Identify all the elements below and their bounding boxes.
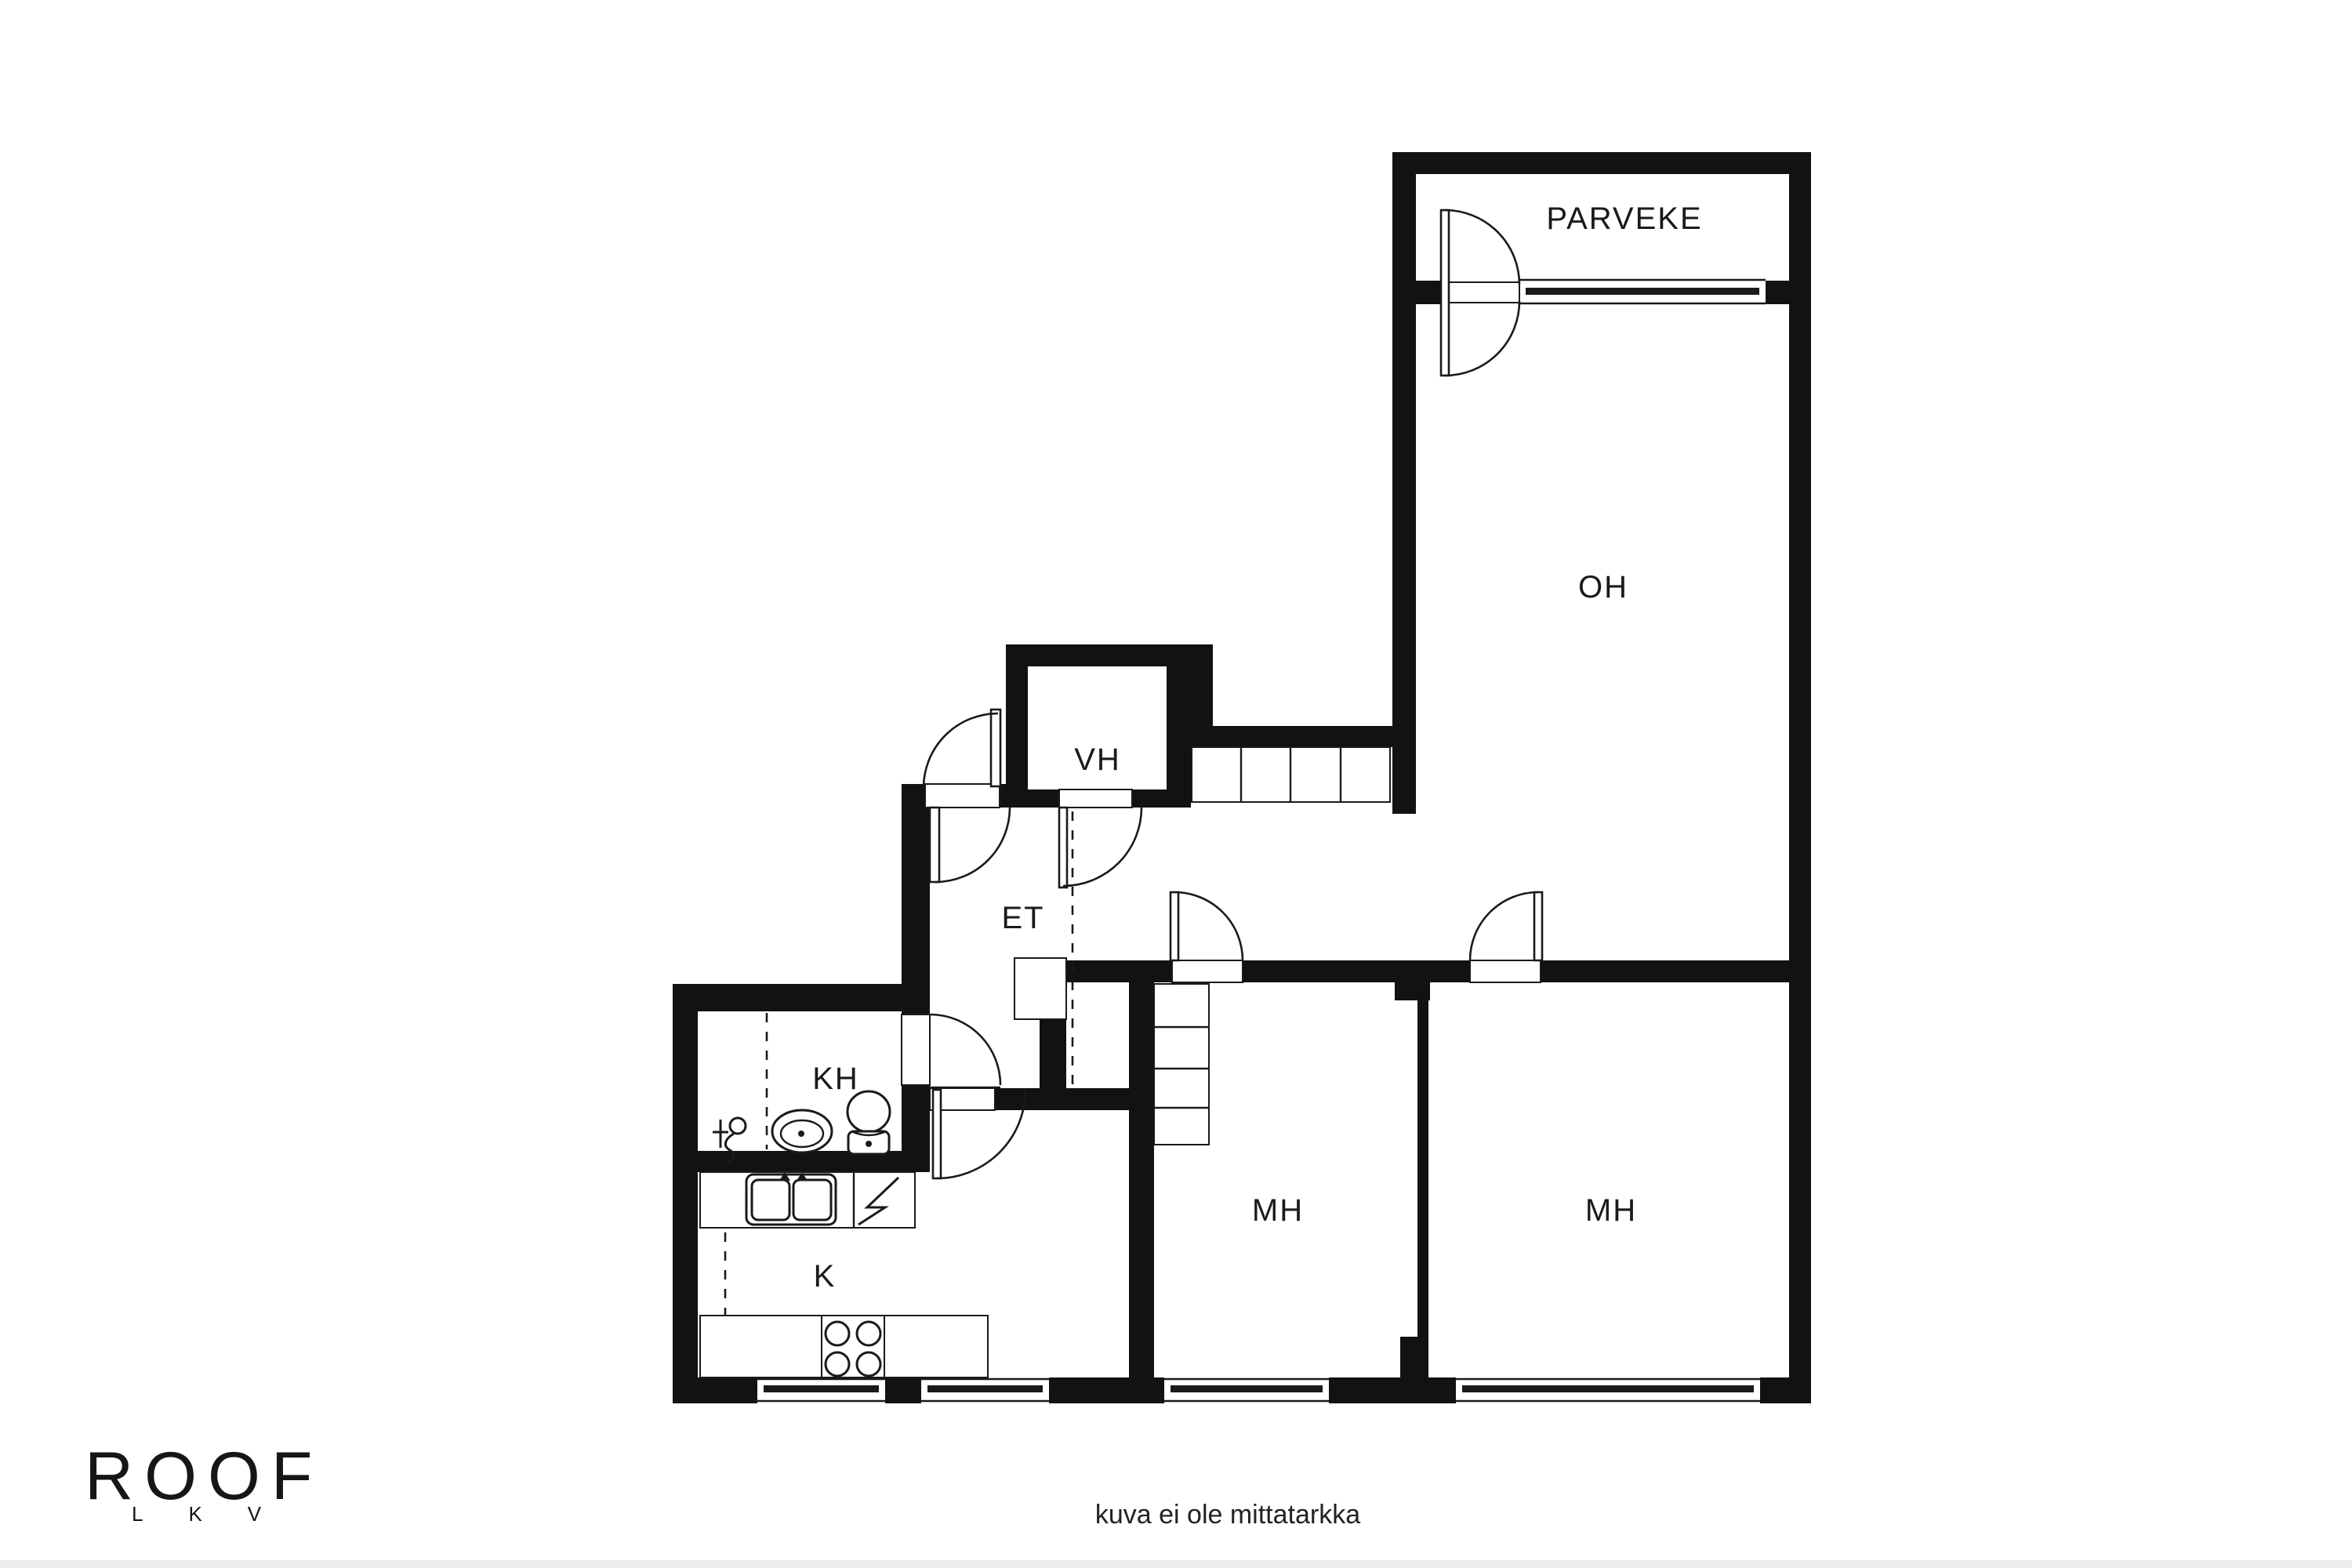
disclaimer-text: kuva ei ole mittatarkka — [1095, 1500, 1360, 1530]
room-label-bathroom: KH — [812, 1062, 859, 1096]
room-label-bedroom-right: MH — [1585, 1193, 1637, 1228]
stove-icon — [822, 1316, 884, 1377]
hall-wardrobe-row — [1192, 747, 1390, 802]
room-label-bedroom-left: MH — [1252, 1193, 1304, 1228]
front-door-outer-swing-icon — [924, 710, 1000, 808]
room-label-balcony: PARVEKE — [1546, 201, 1702, 236]
toilet-icon — [848, 1091, 890, 1154]
bedroom-left-door-swing-icon — [1171, 892, 1243, 982]
bedroom-right-window — [1456, 1379, 1760, 1401]
kitchen-window-2 — [921, 1379, 1049, 1401]
hall-cabinet — [1014, 958, 1066, 1019]
bedroom-left-window — [1164, 1379, 1329, 1401]
room-label-entry-hall: ET — [1001, 901, 1044, 935]
floor-plan: PARVEKE OH VH ET KH K MH MH ROOF LKV kuv… — [0, 0, 2352, 1568]
front-door-inner-swing-icon — [930, 808, 1010, 882]
room-label-kitchen: K — [814, 1259, 837, 1294]
roof-logo: ROOF LKV — [85, 1439, 323, 1526]
bedroom-walls — [1014, 960, 1789, 1377]
bathroom-door-swing-icon — [902, 1014, 1000, 1087]
bedroom-right-door-swing-icon — [1470, 892, 1542, 982]
living-room-left-wall — [1392, 303, 1416, 814]
entry-walls — [673, 784, 1006, 1172]
double-sink-icon — [746, 1172, 836, 1225]
kitchen-fixtures — [700, 1172, 988, 1377]
sink-icon — [772, 1110, 832, 1152]
balcony-window — [1519, 280, 1766, 303]
balcony-door-swing-icon — [1441, 210, 1519, 376]
logo-letters: LKV — [132, 1502, 307, 1526]
room-label-wardrobe: VH — [1074, 742, 1121, 777]
bedroom-left-closet-column — [1154, 984, 1209, 1145]
footer-strip — [0, 1560, 2352, 1568]
doors — [902, 210, 1542, 1178]
kitchen-window — [757, 1379, 885, 1401]
outer-right-wall — [1789, 281, 1811, 1403]
room-label-living-room: OH — [1578, 570, 1628, 604]
